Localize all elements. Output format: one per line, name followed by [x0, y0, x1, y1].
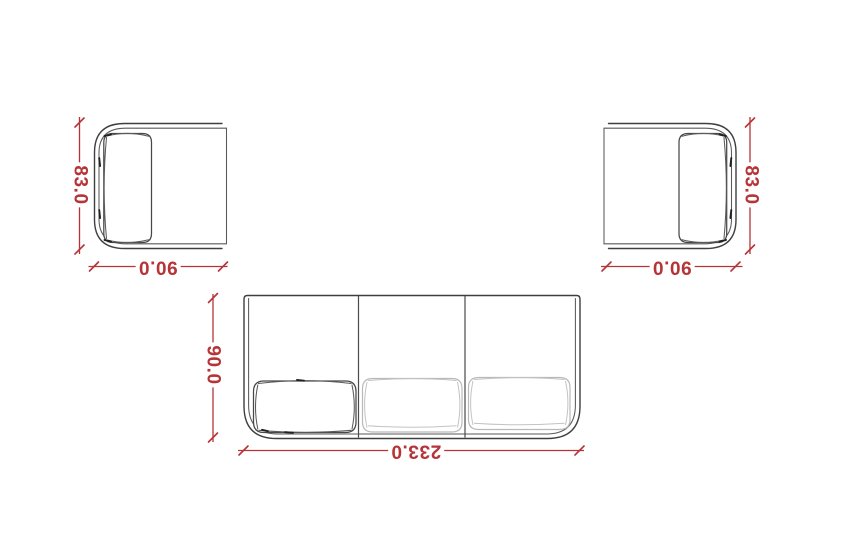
floorplan-canvas: 83.0 90.0 83.0 90.0 90.0 233.0: [0, 0, 850, 545]
dimension-label-armchair-right-depth: 83.0: [742, 162, 761, 207]
sofa-cushion-mark: [297, 380, 304, 381]
dimension-label-armchair-right-width: 90.0: [649, 257, 694, 276]
armchair-left-drawing: [95, 124, 227, 249]
furniture-line-drawing: [0, 0, 850, 545]
dimension-label-sofa-depth: 90.0: [204, 342, 223, 387]
sofa-cushion-right: [469, 378, 571, 430]
sofa-cushion-middle: [363, 379, 463, 433]
dimension-label-armchair-left-depth: 83.0: [71, 162, 90, 207]
sofa-drawing: [244, 296, 580, 439]
dimension-label-armchair-left-width: 90.0: [135, 257, 180, 276]
sofa-cushion-left: [254, 381, 357, 433]
armchair-right-drawing: [604, 124, 736, 249]
dimension-label-sofa-width: 233.0: [388, 441, 444, 460]
sofa-cushion-mark: [285, 432, 293, 433]
